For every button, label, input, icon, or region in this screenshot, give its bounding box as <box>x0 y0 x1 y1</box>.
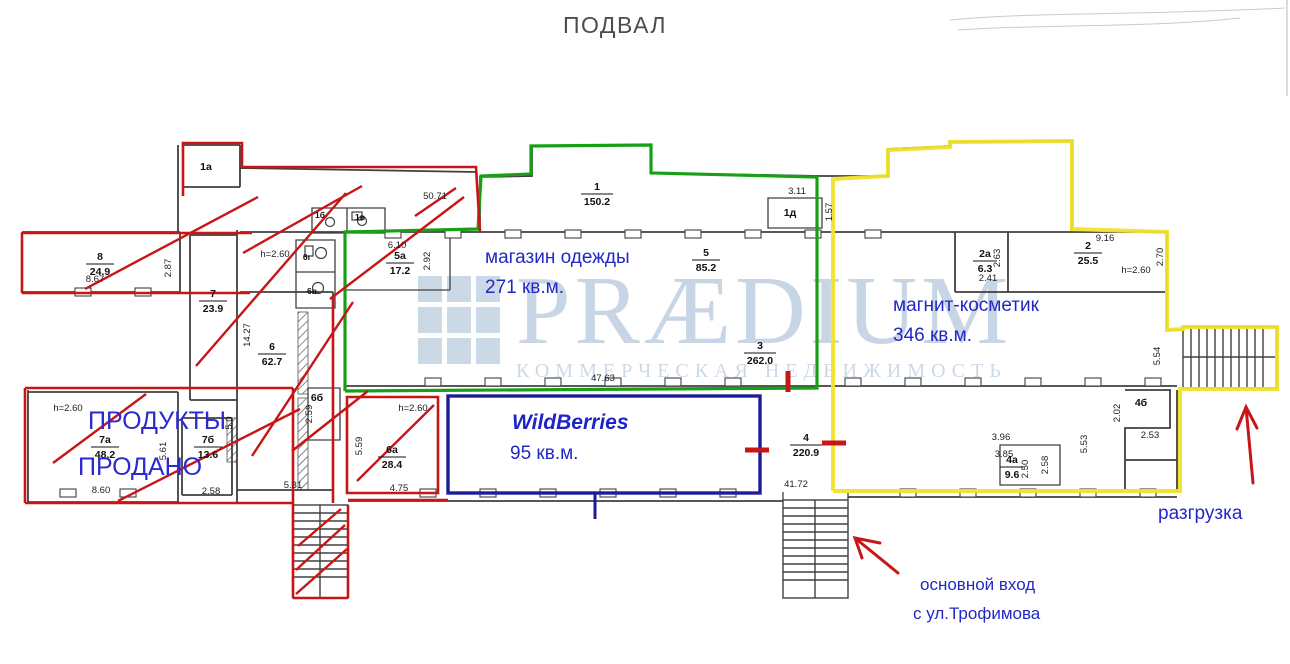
svg-text:25.5: 25.5 <box>1078 255 1099 267</box>
svg-text:62.7: 62.7 <box>262 356 283 368</box>
room-label-8: 824.9 <box>86 251 114 278</box>
svg-text:24.9: 24.9 <box>90 266 111 278</box>
room-label-6a: 6а28.4 <box>378 444 406 471</box>
svg-text:3: 3 <box>757 340 763 352</box>
room-label-1d: 1д <box>784 207 797 219</box>
dim: 1.57 <box>824 203 835 222</box>
svg-text:7: 7 <box>210 288 216 300</box>
room-label-6g: 6г <box>303 252 312 262</box>
magnit-area: 346 кв.м. <box>893 325 972 346</box>
dim: h=2.60 <box>1121 265 1150 276</box>
dim: 47.63 <box>591 373 615 384</box>
room-label-6: 662.7 <box>258 341 286 368</box>
svg-text:85.2: 85.2 <box>696 262 717 274</box>
unloading-arrow <box>1237 407 1257 483</box>
svg-text:5: 5 <box>703 247 709 259</box>
dim: 5.53 <box>1079 435 1090 454</box>
room-label-1a: 1а <box>200 161 212 173</box>
scan-artifacts <box>950 0 1287 96</box>
svg-text:6.3: 6.3 <box>978 263 993 275</box>
stairs-bottom-entrance <box>783 500 848 598</box>
dim: 9.16 <box>1096 233 1115 244</box>
dim: 2.58 <box>202 486 221 497</box>
svg-text:4: 4 <box>803 432 809 444</box>
dim: 2.92 <box>422 252 433 271</box>
dim: 2.87 <box>163 259 174 278</box>
dim: 2.53 <box>1141 430 1160 441</box>
dim: 8.60 <box>92 485 111 496</box>
svg-text:8: 8 <box>97 251 103 263</box>
hatched-walls <box>227 312 308 490</box>
room-label-6v: 6в <box>307 286 317 296</box>
dim: h=2.60 <box>53 403 82 414</box>
dim: 5.59 <box>354 437 365 456</box>
svg-text:150.2: 150.2 <box>584 196 610 208</box>
room-label-3: 3262.0 <box>744 340 776 367</box>
svg-text:2: 2 <box>1085 240 1091 252</box>
svg-text:17.2: 17.2 <box>390 265 411 277</box>
stairs-unloading <box>1183 327 1277 388</box>
dim: 3.11 <box>788 186 806 197</box>
sold-label: ПРОДАНО <box>78 453 202 481</box>
svg-text:220.9: 220.9 <box>793 447 819 459</box>
dim: 2.63 <box>992 249 1003 268</box>
room-label-5: 585.2 <box>692 247 720 274</box>
dim: 2.70 <box>1155 248 1166 267</box>
unloading-label: разгрузка <box>1158 503 1243 524</box>
basement-floor-plan: PRÆDIUM КОММЕРЧЕСКАЯ НЕДВИЖИМОСТЬ ПОДВАЛ <box>0 0 1290 664</box>
dim: 41.72 <box>784 479 808 490</box>
svg-text:9.6: 9.6 <box>1005 469 1020 481</box>
dim: h=2.60 <box>398 403 427 414</box>
room-label-1v: 1в <box>355 212 365 222</box>
tenant-labels: магазин одежды 271 кв.м. магнит-косметик… <box>78 247 1243 623</box>
svg-text:1: 1 <box>594 181 600 193</box>
svg-text:7а: 7а <box>99 434 111 446</box>
room-label-4b: 4б <box>1135 397 1148 409</box>
entrance-label-line2: с ул.Трофимова <box>913 604 1041 623</box>
dim: 14.27 <box>242 323 253 347</box>
svg-text:2а: 2а <box>979 248 991 260</box>
dim: 2.58 <box>1040 456 1051 475</box>
entrance-label-line1: основной вход <box>920 575 1035 594</box>
dim: 5.31 <box>284 480 303 491</box>
floor-plan-drawing: ПОДВАЛ <box>0 0 1290 664</box>
svg-text:23.9: 23.9 <box>203 303 224 315</box>
dim: 3.96 <box>992 432 1011 443</box>
dim: 50.71 <box>423 191 447 202</box>
dim: 4.75 <box>390 483 409 494</box>
stairs-left <box>293 505 348 598</box>
svg-text:6а: 6а <box>386 444 398 456</box>
dim: 2.02 <box>1112 404 1123 423</box>
svg-text:28.4: 28.4 <box>382 459 403 471</box>
dim: 5.54 <box>1152 347 1163 366</box>
wc-fixtures <box>305 212 367 294</box>
svg-text:262.0: 262.0 <box>747 355 773 367</box>
room-label-2: 225.5 <box>1074 240 1102 267</box>
dim: h=2.60 <box>260 249 289 260</box>
dim: 2.59 <box>304 405 315 424</box>
room-label-6b: 6б <box>311 392 324 404</box>
dim: 2.50 <box>1020 460 1031 479</box>
page-title: ПОДВАЛ <box>563 12 667 38</box>
products-label: ПРОДУКТЫ <box>88 407 226 435</box>
svg-text:4а: 4а <box>1006 454 1018 466</box>
clothing-store-area: 271 кв.м. <box>485 277 564 298</box>
svg-text:6: 6 <box>269 341 275 353</box>
entrance-arrow <box>855 538 898 573</box>
svg-text:7б: 7б <box>202 434 215 446</box>
room-label-4: 4220.9 <box>790 432 822 459</box>
wildberries-name: WildBerries <box>512 411 629 434</box>
red-boundaries <box>22 143 480 598</box>
magnit-name: магнит-косметик <box>893 295 1040 316</box>
room-label-1: 1150.2 <box>581 181 613 208</box>
wildberries-area: 95 кв.м. <box>510 443 578 464</box>
clothing-store-name: магазин одежды <box>485 247 630 268</box>
room-label-1b: 1б <box>315 210 325 220</box>
magnit-outline <box>833 141 1277 491</box>
svg-text:5а: 5а <box>394 250 406 262</box>
